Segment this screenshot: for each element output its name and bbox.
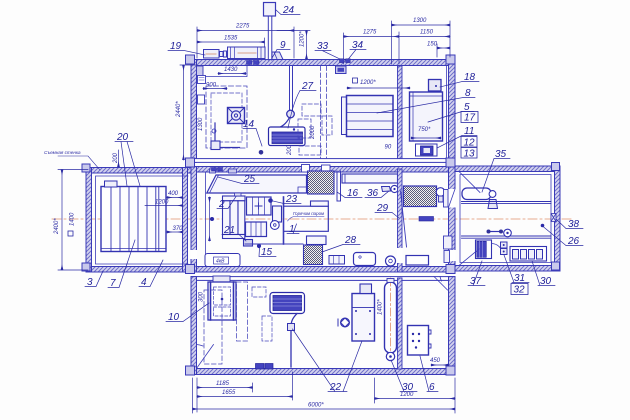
svg-text:12: 12: [464, 138, 476, 149]
svg-text:1300: 1300: [198, 117, 204, 131]
svg-text:1200*: 1200*: [300, 31, 306, 47]
svg-text:200: 200: [287, 144, 293, 156]
svg-text:1300: 1300: [413, 18, 427, 24]
svg-text:6000*: 6000*: [308, 403, 324, 409]
svg-text:4кВ: 4кВ: [216, 259, 225, 265]
svg-text:150: 150: [427, 42, 438, 48]
svg-text:2000: 2000: [310, 125, 316, 140]
svg-text:1185: 1185: [216, 381, 230, 387]
svg-text:1655: 1655: [222, 390, 236, 396]
svg-text:2440*: 2440*: [176, 101, 182, 118]
svg-text:1275: 1275: [363, 30, 377, 36]
svg-text:750*: 750*: [418, 127, 431, 133]
svg-text:Горячим паром: Горячим паром: [293, 211, 324, 216]
svg-text:1150: 1150: [420, 30, 434, 36]
svg-text:450: 450: [430, 358, 441, 364]
svg-text:17: 17: [464, 113, 476, 124]
svg-text:200: 200: [113, 152, 119, 164]
svg-text:300: 300: [199, 291, 205, 302]
svg-text:1400: 1400: [70, 212, 76, 226]
svg-text:2400*: 2400*: [54, 218, 60, 235]
svg-text:Съемная стенка: Съемная стенка: [44, 150, 81, 155]
svg-text:1200: 1200: [155, 200, 169, 206]
svg-text:900: 900: [206, 83, 217, 89]
svg-text:1200*: 1200*: [360, 80, 376, 86]
svg-text:370: 370: [173, 226, 184, 232]
svg-text:13: 13: [464, 149, 476, 160]
svg-text:400: 400: [168, 191, 179, 197]
svg-text:32: 32: [514, 285, 526, 296]
svg-text:1535: 1535: [224, 36, 238, 42]
svg-text:90: 90: [385, 145, 392, 151]
svg-text:1430: 1430: [224, 67, 238, 73]
svg-text:1400*: 1400*: [378, 299, 384, 315]
svg-text:2275: 2275: [235, 24, 250, 30]
